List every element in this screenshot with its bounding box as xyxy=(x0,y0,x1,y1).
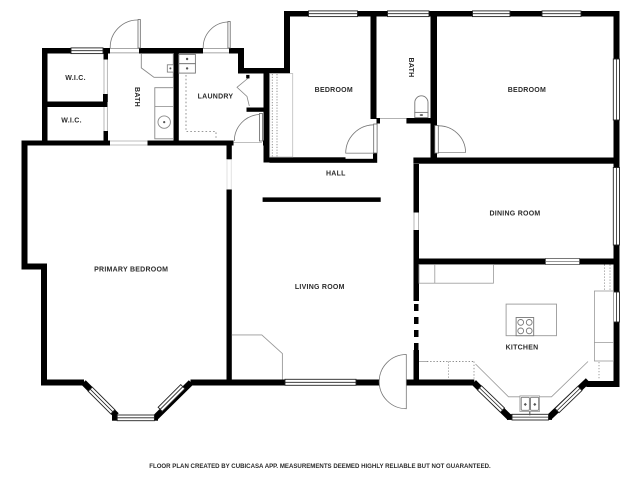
svg-text:HALL: HALL xyxy=(326,170,346,177)
svg-text:KITCHEN: KITCHEN xyxy=(506,344,539,351)
svg-text:W.I.C.: W.I.C. xyxy=(61,118,82,125)
svg-text:FLOOR PLAN CREATED BY CUBICASA: FLOOR PLAN CREATED BY CUBICASA APP. MEAS… xyxy=(149,463,491,470)
svg-text:BATH: BATH xyxy=(133,87,140,107)
svg-text:LAUNDRY: LAUNDRY xyxy=(198,94,234,101)
svg-text:BATH: BATH xyxy=(407,58,414,78)
svg-text:BEDROOM: BEDROOM xyxy=(315,87,353,94)
svg-text:DINING ROOM: DINING ROOM xyxy=(490,211,541,218)
svg-text:PRIMARY BEDROOM: PRIMARY BEDROOM xyxy=(94,267,168,274)
svg-text:LIVING ROOM: LIVING ROOM xyxy=(295,284,345,291)
svg-text:W.I.C.: W.I.C. xyxy=(65,75,86,82)
svg-text:BEDROOM: BEDROOM xyxy=(508,87,546,94)
